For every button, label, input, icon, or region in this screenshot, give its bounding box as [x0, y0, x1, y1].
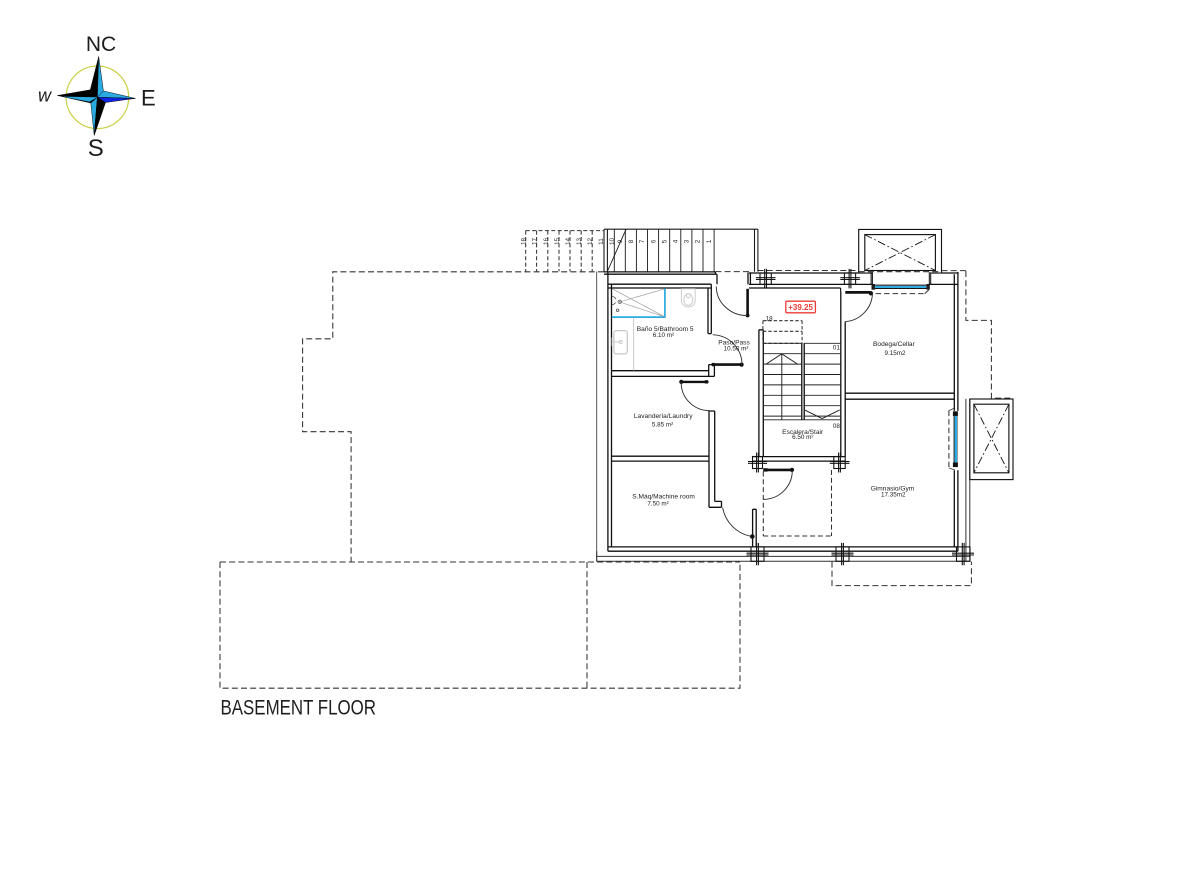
svg-text:9: 9 [617, 239, 624, 243]
svg-text:10: 10 [609, 238, 616, 246]
svg-text:14: 14 [565, 238, 572, 246]
svg-text:S.Máq/Machine room: S.Máq/Machine room [632, 493, 695, 500]
svg-text:18: 18 [521, 238, 528, 246]
svg-text:+39.25: +39.25 [788, 303, 813, 312]
svg-text:16: 16 [543, 238, 550, 246]
svg-text:3: 3 [684, 239, 691, 243]
svg-text:08: 08 [833, 423, 841, 430]
svg-text:6.10 m²: 6.10 m² [653, 332, 674, 339]
svg-text:2: 2 [695, 239, 702, 243]
svg-text:w: w [38, 86, 52, 106]
svg-text:7.50 m²: 7.50 m² [647, 500, 668, 507]
svg-text:18: 18 [766, 315, 774, 322]
svg-text:NC: NC [86, 33, 116, 56]
svg-text:5: 5 [661, 239, 668, 243]
svg-text:17.35m2: 17.35m2 [881, 492, 906, 499]
svg-text:E: E [141, 86, 156, 111]
svg-text:8: 8 [628, 239, 635, 243]
svg-text:5.85 m²: 5.85 m² [652, 422, 673, 429]
svg-text:Bodega/Cellar: Bodega/Cellar [873, 341, 916, 348]
svg-text:17: 17 [532, 238, 539, 246]
svg-text:Lavandería/Laundry: Lavandería/Laundry [634, 413, 693, 420]
svg-text:11: 11 [598, 238, 605, 245]
svg-text:6.50 m²: 6.50 m² [792, 434, 813, 441]
svg-text:01: 01 [833, 345, 841, 352]
svg-text:4: 4 [673, 239, 680, 243]
svg-text:13: 13 [576, 238, 583, 246]
svg-text:15: 15 [554, 238, 561, 246]
svg-text:10.50 m²: 10.50 m² [724, 345, 749, 352]
svg-text:9.15m2: 9.15m2 [884, 350, 906, 357]
svg-text:1: 1 [706, 239, 713, 243]
svg-text:7: 7 [639, 239, 646, 243]
svg-text:12: 12 [587, 238, 594, 246]
svg-text:S: S [88, 135, 104, 162]
svg-text:BASEMENT FLOOR: BASEMENT FLOOR [221, 695, 377, 719]
svg-text:6: 6 [650, 239, 657, 243]
